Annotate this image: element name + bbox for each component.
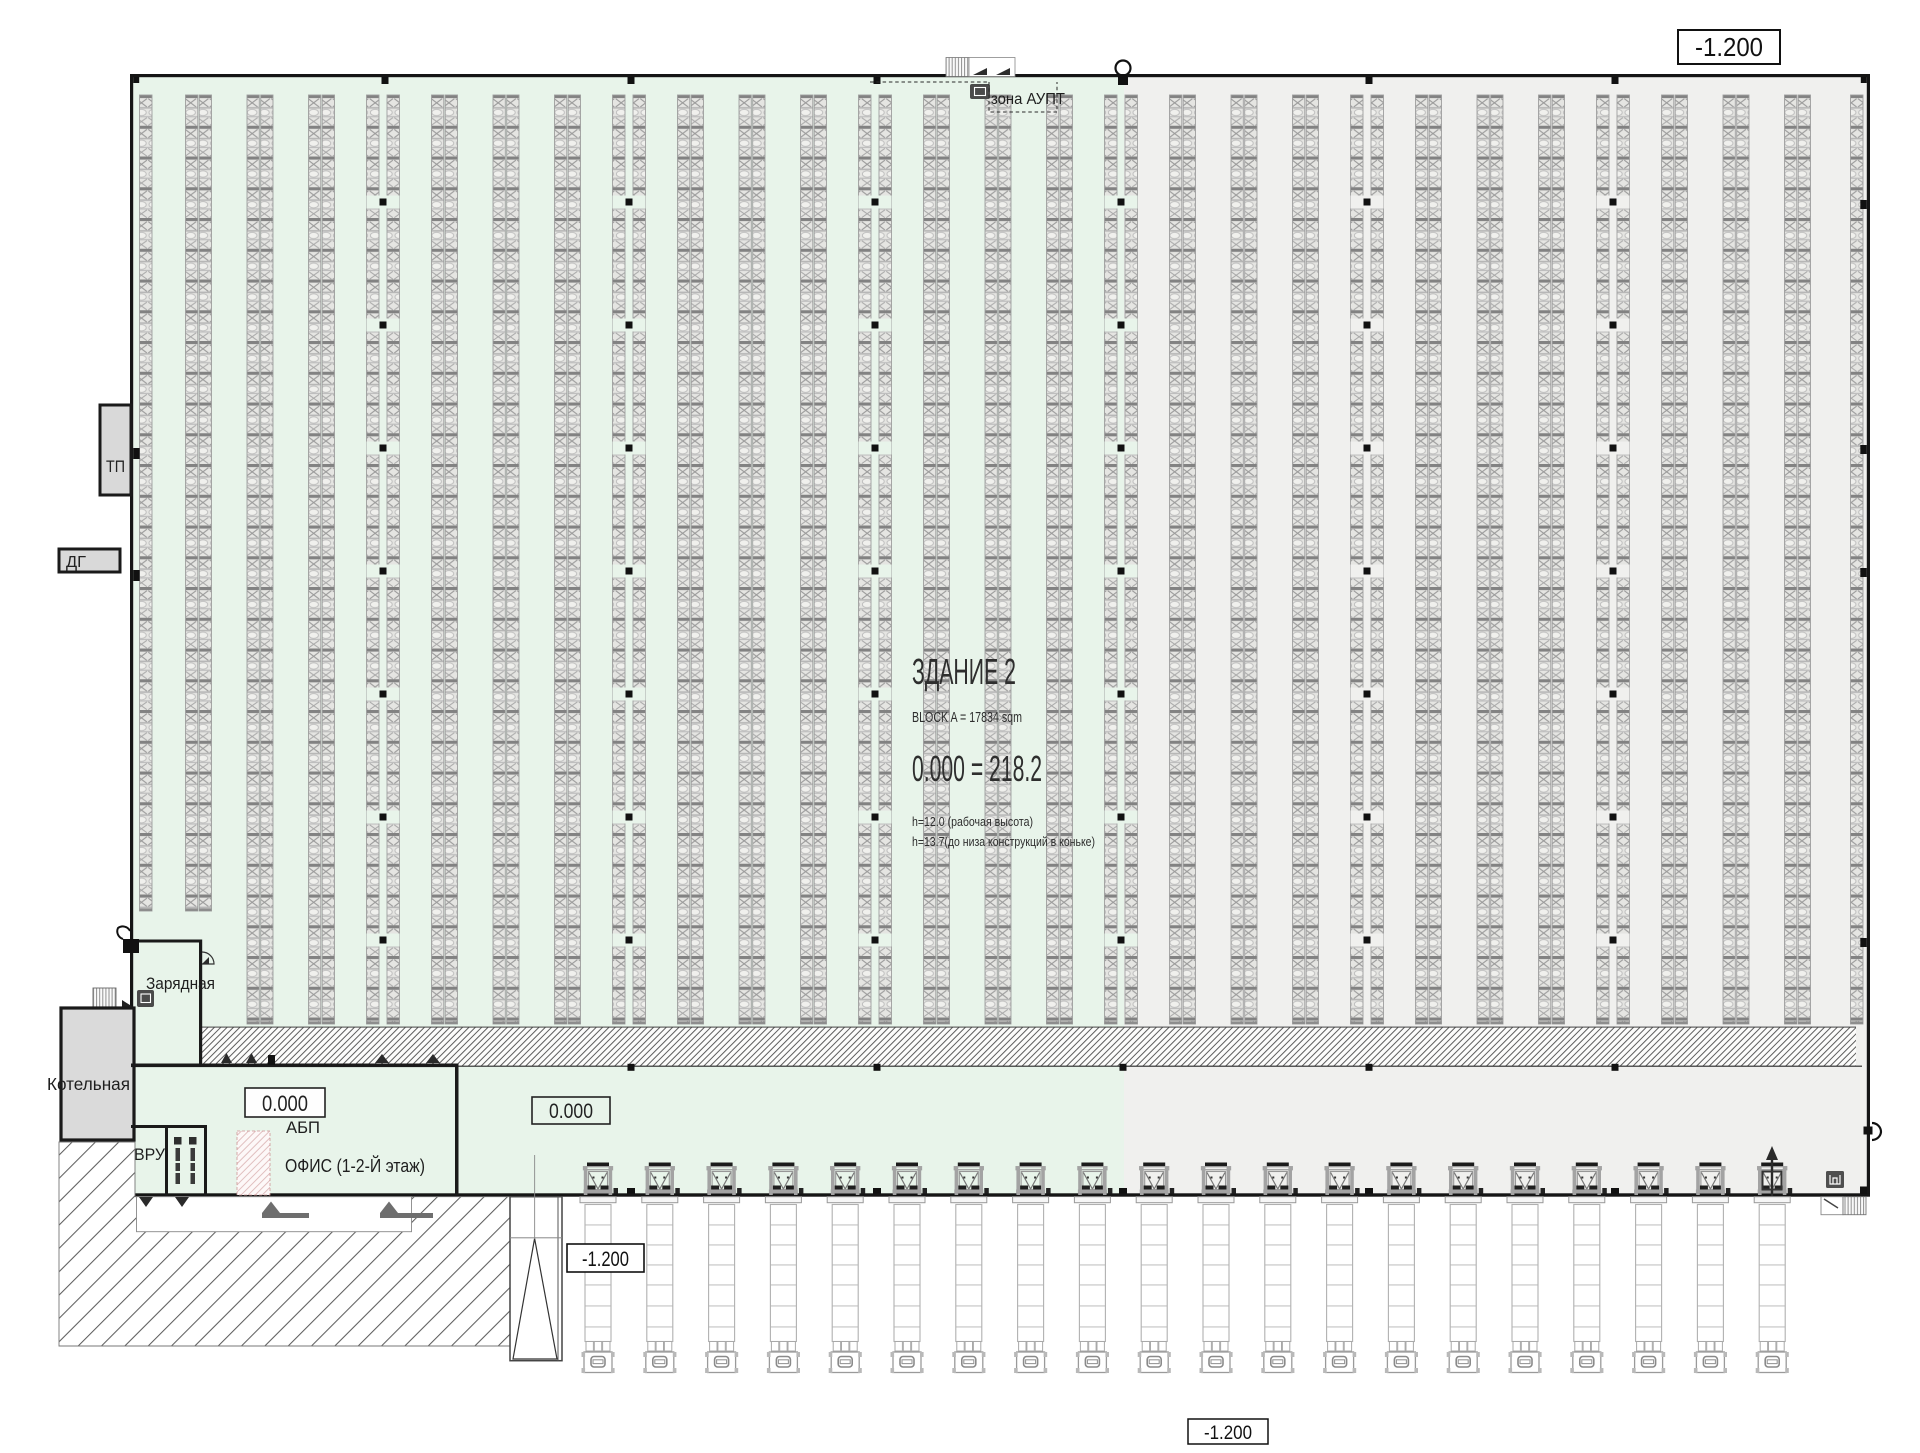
svg-text:0.000: 0.000	[549, 1100, 593, 1123]
svg-text:зона АУПТ: зона АУПТ	[991, 91, 1066, 108]
svg-text:ВРУ: ВРУ	[134, 1145, 165, 1164]
svg-text:Котельная: Котельная	[47, 1074, 130, 1094]
svg-text:0.000: 0.000	[262, 1091, 308, 1116]
svg-text:h=12.0 (рабочая высота): h=12.0 (рабочая высота)	[912, 814, 1033, 829]
svg-text:-1.200: -1.200	[1204, 1423, 1252, 1444]
svg-text:h=13.7(до низа конструкций в к: h=13.7(до низа конструкций в коньке)	[912, 834, 1095, 849]
svg-text:BLOCK A = 17834 sqm: BLOCK A = 17834 sqm	[912, 710, 1022, 726]
svg-text:ДГ: ДГ	[66, 554, 86, 571]
svg-text:АБП: АБП	[286, 1118, 320, 1137]
svg-text:-1.200: -1.200	[1695, 32, 1763, 62]
svg-text:0.000 = 218.2: 0.000 = 218.2	[912, 748, 1042, 789]
svg-text:Зарядная: Зарядная	[146, 975, 215, 993]
svg-text:ОФИС (1-2-Й этаж): ОФИС (1-2-Й этаж)	[285, 1155, 425, 1176]
svg-text:-1.200: -1.200	[582, 1248, 629, 1271]
svg-text:ЗДАНИЕ 2: ЗДАНИЕ 2	[912, 651, 1016, 692]
svg-text:ТП: ТП	[106, 457, 125, 476]
